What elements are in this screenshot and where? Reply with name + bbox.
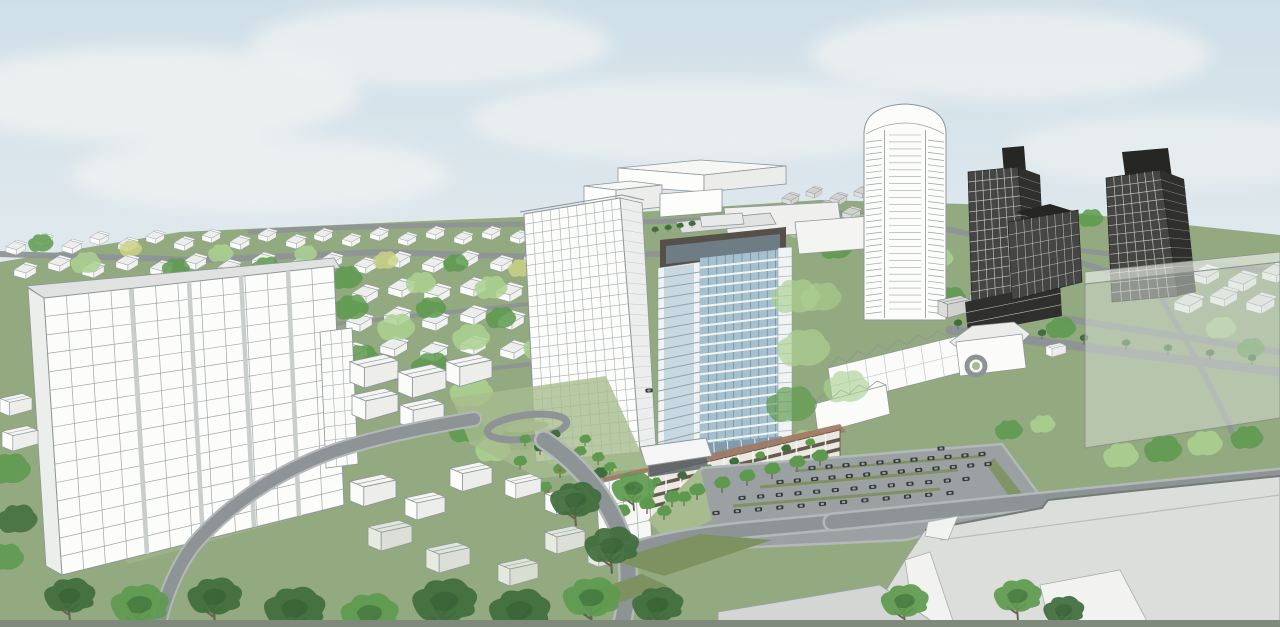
car xyxy=(842,463,850,468)
car xyxy=(925,480,933,485)
glass-body xyxy=(700,249,784,452)
car xyxy=(645,388,652,393)
car xyxy=(813,489,821,494)
car xyxy=(859,462,867,467)
car xyxy=(880,471,888,476)
car xyxy=(937,446,944,451)
rounded-top-tower xyxy=(864,104,946,320)
car xyxy=(904,494,912,499)
car xyxy=(811,477,819,482)
car xyxy=(932,466,940,471)
car xyxy=(869,485,877,490)
car xyxy=(950,465,958,470)
car xyxy=(808,466,816,471)
car xyxy=(925,492,933,497)
car xyxy=(846,474,854,479)
rendering-canvas: Aerial 3D architectural massing renderin… xyxy=(0,0,1280,627)
car xyxy=(738,496,746,501)
architectural-rendering: Aerial 3D architectural massing renderin… xyxy=(0,0,1280,627)
balcony-wing xyxy=(658,262,700,463)
car xyxy=(876,460,884,465)
bottom-edge-strip xyxy=(0,620,1280,627)
car xyxy=(850,486,858,491)
flat-slab xyxy=(795,216,874,254)
car xyxy=(906,482,914,487)
car xyxy=(944,455,952,460)
car xyxy=(794,478,802,483)
car xyxy=(915,468,923,473)
proposed-blue-tower xyxy=(652,213,792,476)
car xyxy=(882,496,890,501)
ghost-massing-box xyxy=(1085,252,1280,448)
car xyxy=(712,511,720,516)
car xyxy=(978,452,986,457)
car xyxy=(946,491,954,496)
car xyxy=(832,488,840,493)
car xyxy=(944,478,952,483)
car xyxy=(819,502,827,507)
car xyxy=(776,505,784,510)
car xyxy=(734,509,742,514)
car xyxy=(961,453,969,458)
car xyxy=(825,464,833,469)
car xyxy=(898,469,906,474)
car xyxy=(962,477,970,482)
car xyxy=(776,493,784,498)
car xyxy=(840,500,848,505)
car xyxy=(797,503,805,508)
car xyxy=(861,498,869,503)
commercial-box xyxy=(660,189,722,217)
car xyxy=(910,457,918,462)
car xyxy=(888,483,896,488)
car xyxy=(967,463,975,468)
car xyxy=(794,491,802,496)
car xyxy=(757,494,765,499)
car xyxy=(776,480,784,485)
car xyxy=(863,472,871,477)
car xyxy=(984,462,992,467)
car xyxy=(755,507,763,512)
car xyxy=(893,459,901,464)
car xyxy=(927,456,935,461)
car xyxy=(828,475,836,480)
